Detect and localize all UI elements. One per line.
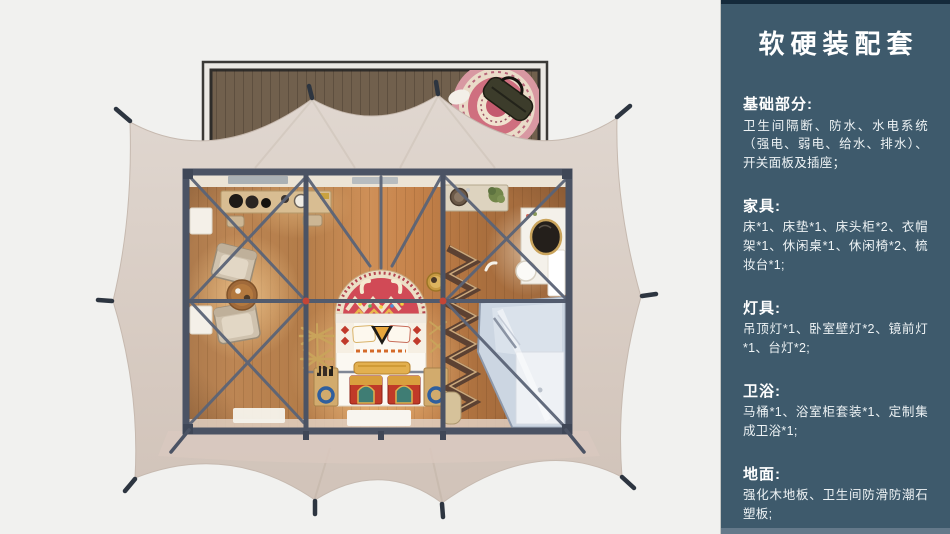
frame-connector bbox=[440, 298, 447, 305]
section-flooring: 地面: 强化木地板、卫生间防滑防潮石塑板; bbox=[743, 465, 928, 524]
section-body: 强化木地板、卫生间防滑防潮石塑板; bbox=[743, 486, 928, 524]
sidebar-bottom-strip bbox=[721, 528, 950, 534]
page: 软硬装配套 基础部分: 卫生间隔断、防水、水电系统（强电、弱电、给水、排水）、开… bbox=[0, 0, 950, 534]
ceiling-vent bbox=[352, 177, 398, 184]
sidebar-top-strip bbox=[721, 0, 950, 4]
sidebar-title: 软硬装配套 bbox=[743, 24, 928, 61]
section-bathroom: 卫浴: 马桶*1、浴室柜套装*1、定制集成卫浴*1; bbox=[743, 382, 928, 441]
window-panel bbox=[190, 208, 212, 234]
section-furniture: 家具: 床*1、床垫*1、床头柜*2、衣帽架*1、休闲桌*1、休闲椅*2、梳妆台… bbox=[743, 197, 928, 275]
spec-sidebar: 软硬装配套 基础部分: 卫生间隔断、防水、水电系统（强电、弱电、给水、排水）、开… bbox=[720, 0, 950, 534]
tent-top-view-render bbox=[0, 0, 720, 534]
ceiling-vent bbox=[228, 176, 288, 184]
section-lighting: 灯具: 吊顶灯*1、卧室壁灯*2、镜前灯*1、台灯*2; bbox=[743, 299, 928, 358]
frame-connector bbox=[303, 298, 310, 305]
section-basics: 基础部分: 卫生间隔断、防水、水电系统（强电、弱电、给水、排水）、开关面板及插座… bbox=[743, 95, 928, 173]
section-heading: 基础部分: bbox=[743, 95, 928, 115]
section-heading: 家具: bbox=[743, 197, 928, 217]
section-body: 床*1、床垫*1、床头柜*2、衣帽架*1、休闲桌*1、休闲椅*2、梳妆台*1; bbox=[743, 218, 928, 274]
section-body: 卫生间隔断、防水、水电系统（强电、弱电、给水、排水）、开关面板及插座； bbox=[743, 117, 928, 173]
section-heading: 灯具: bbox=[743, 299, 928, 319]
door-mat bbox=[347, 410, 411, 426]
section-body: 吊顶灯*1、卧室壁灯*2、镜前灯*1、台灯*2; bbox=[743, 320, 928, 358]
door-mat bbox=[233, 408, 285, 423]
round-table bbox=[227, 280, 257, 310]
section-heading: 卫浴: bbox=[743, 382, 928, 402]
section-body: 马桶*1、浴室柜套装*1、定制集成卫浴*1; bbox=[743, 403, 928, 441]
section-heading: 地面: bbox=[743, 465, 928, 485]
